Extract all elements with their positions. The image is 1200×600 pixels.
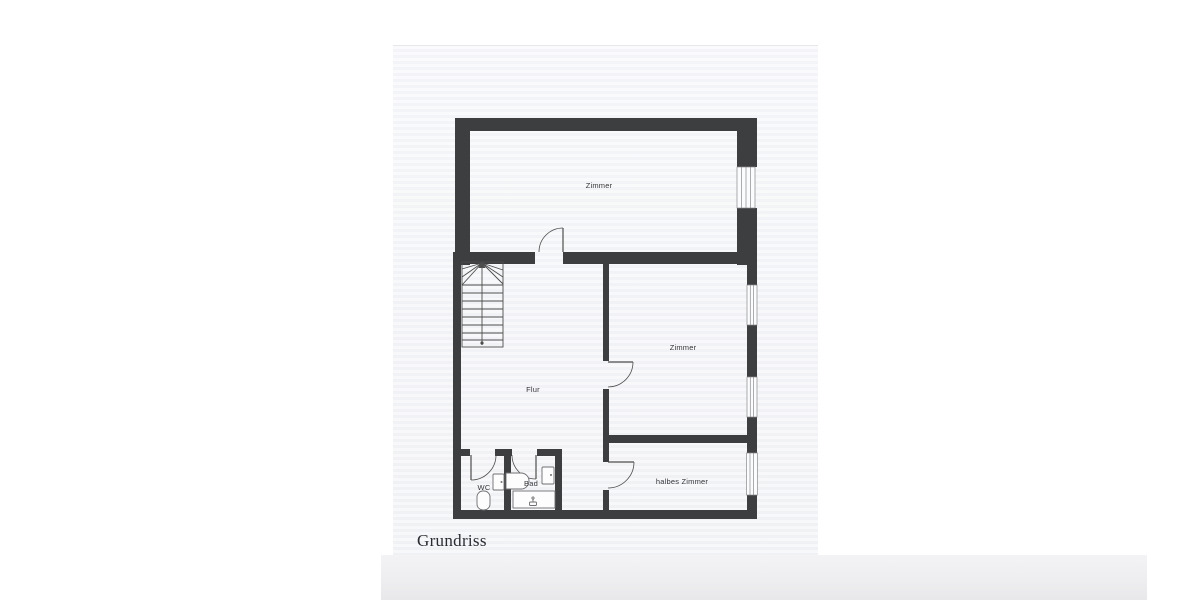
room-labels: Zimmer Zimmer Flur halbes Zimmer WC Bad (478, 181, 709, 492)
walls (453, 118, 757, 519)
scanned-floor-plan-page: { "page": { "caption": "Grundriss", "bac… (0, 0, 1200, 600)
wall-segment (455, 118, 757, 131)
wall-segment (747, 264, 757, 285)
room-label-flur: Flur (526, 385, 540, 394)
room-label-zimmer-middle: Zimmer (670, 343, 697, 352)
window-icon (747, 453, 758, 495)
wall-segment (603, 264, 609, 361)
wall-segment (453, 449, 470, 456)
staircase-icon (462, 262, 503, 347)
window-icon (747, 285, 757, 325)
window-icon (737, 167, 755, 208)
sink-icon (493, 474, 504, 490)
wall-segment (747, 495, 757, 512)
wall-segment (453, 510, 757, 519)
door-icon (471, 455, 496, 480)
door-icon (608, 362, 633, 387)
plan-caption: Grundriss (417, 531, 487, 551)
wall-segment (603, 490, 609, 510)
shower-icon (513, 491, 555, 508)
wall-segment (737, 118, 757, 167)
room-label-halbes-zimmer: halbes Zimmer (656, 477, 708, 486)
floor-plan: Zimmer Zimmer Flur halbes Zimmer WC Bad (0, 0, 1200, 600)
door-icon (608, 462, 634, 488)
wall-segment (453, 252, 461, 519)
sink-icon (542, 467, 554, 484)
wall-segment (555, 456, 562, 510)
wall-segment (603, 435, 757, 443)
wall-segment (455, 131, 470, 265)
wall-segment (495, 449, 512, 456)
window-icon (747, 377, 757, 417)
room-label-bad: Bad (524, 479, 538, 488)
room-label-zimmer-top: Zimmer (586, 181, 613, 190)
wall-segment (603, 443, 609, 462)
door-icon (539, 228, 563, 252)
wall-segment (563, 252, 757, 264)
wall-segment (537, 449, 562, 456)
toilet-icon (477, 491, 490, 510)
room-label-wc: WC (478, 483, 491, 492)
wall-segment (747, 325, 757, 377)
wall-segment (603, 389, 609, 435)
